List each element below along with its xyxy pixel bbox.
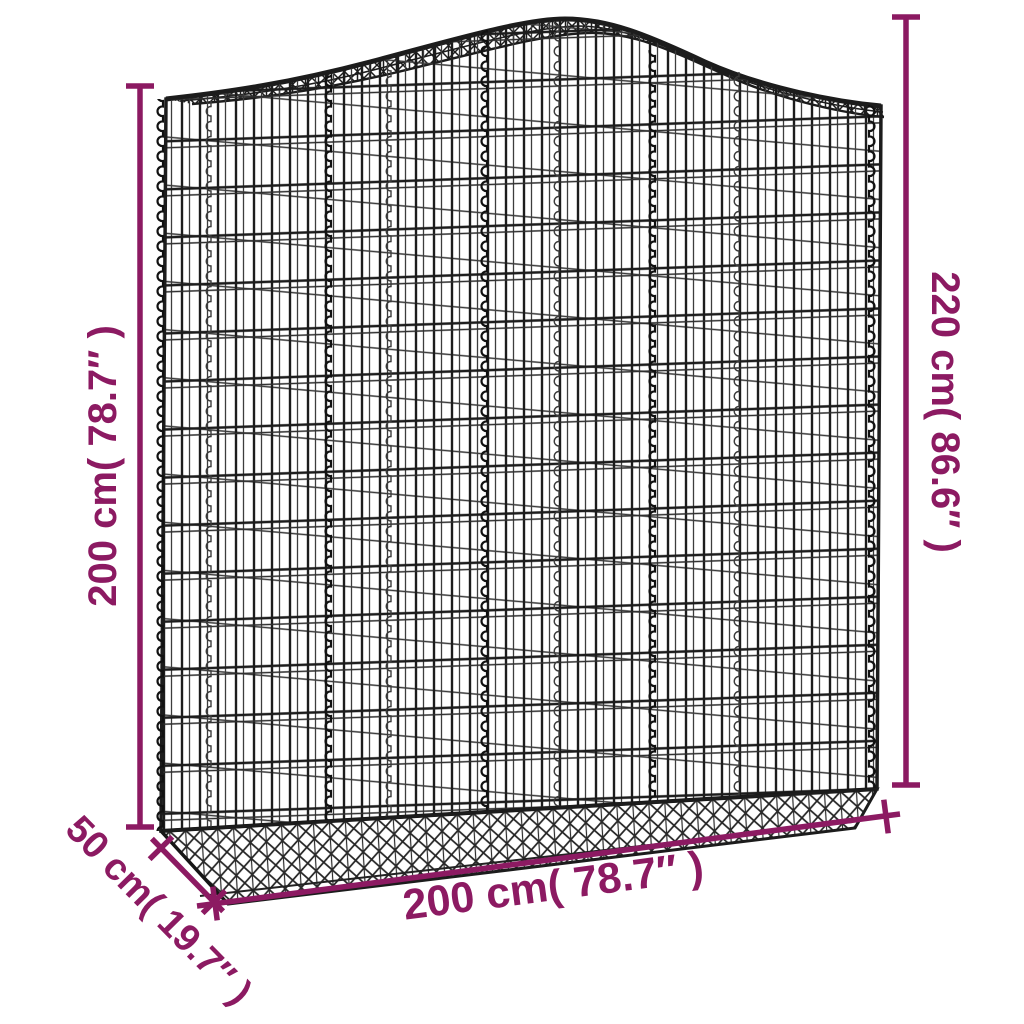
- product-dimension-diagram: 200 cm( 78.7″ ) 220 cm( 86.6″ ) 200 cm( …: [0, 0, 1024, 1024]
- dimension-line-height-left: [126, 86, 154, 827]
- diagram-canvas: 200 cm( 78.7″ ) 220 cm( 86.6″ ) 200 cm( …: [0, 0, 1024, 1024]
- dimension-height-right: 220 cm( 86.6″ ): [892, 17, 967, 785]
- dimension-line-height-right: [892, 17, 920, 785]
- dimension-label-height-left: 200 cm( 78.7″ ): [81, 325, 125, 607]
- dimension-label-height-right: 220 cm( 86.6″ ): [923, 271, 967, 553]
- dimension-height-left: 200 cm( 78.7″ ): [81, 86, 154, 827]
- gabion-basket-illustration: [150, 10, 895, 904]
- basket-front-face: [150, 10, 895, 840]
